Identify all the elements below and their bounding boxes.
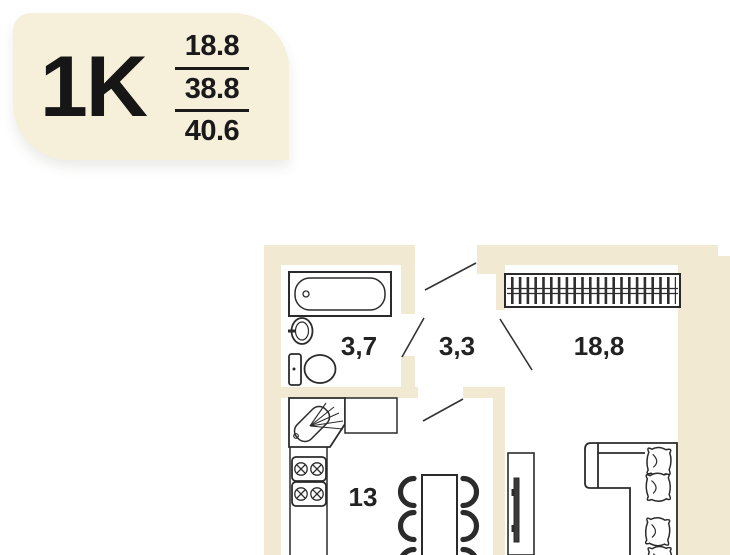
wall-segment <box>496 274 505 310</box>
sofa-pillow <box>645 517 670 546</box>
wardrobe <box>505 274 680 307</box>
bathtub <box>289 272 391 316</box>
door-swing-line <box>500 319 532 370</box>
door-swing-line <box>402 318 424 357</box>
sofa-pillow <box>646 473 671 502</box>
chair <box>463 479 477 506</box>
floor-plan-page: 1K 18.8 38.8 40.6 <box>0 0 730 555</box>
room-area-label-living-room: 18,8 <box>574 331 625 361</box>
chair <box>401 513 415 540</box>
corner-sink <box>289 398 345 447</box>
wall-segment <box>493 398 505 555</box>
sofa-pillow <box>648 546 673 555</box>
chair <box>463 513 477 540</box>
wash-basin <box>288 318 313 344</box>
wall-segment <box>463 387 505 398</box>
wall-segment <box>401 245 415 314</box>
wall-segment <box>264 245 415 265</box>
tv <box>514 478 519 542</box>
floor-plan-image: 3,7 3,3 18,8 13 <box>0 0 730 555</box>
chair <box>401 550 415 555</box>
door-swing-line <box>423 399 463 421</box>
chair <box>463 550 477 555</box>
room-area-label-bathroom: 3,7 <box>341 331 377 361</box>
toilet <box>289 354 336 385</box>
sofa-pillow <box>646 447 671 476</box>
wall-segment <box>264 245 281 555</box>
stove <box>292 457 326 506</box>
wall-notch <box>718 245 730 256</box>
wall-segment <box>678 245 730 555</box>
room-area-label-kitchen: 13 <box>349 482 378 512</box>
chair <box>401 479 415 506</box>
tv-stand <box>508 453 534 555</box>
wall-segment <box>477 265 505 274</box>
wall-segment <box>401 356 415 387</box>
dining-table <box>422 475 457 555</box>
room-area-label-hallway: 3,3 <box>439 331 475 361</box>
door-swing-line <box>425 263 476 290</box>
wall-segment <box>281 387 418 398</box>
